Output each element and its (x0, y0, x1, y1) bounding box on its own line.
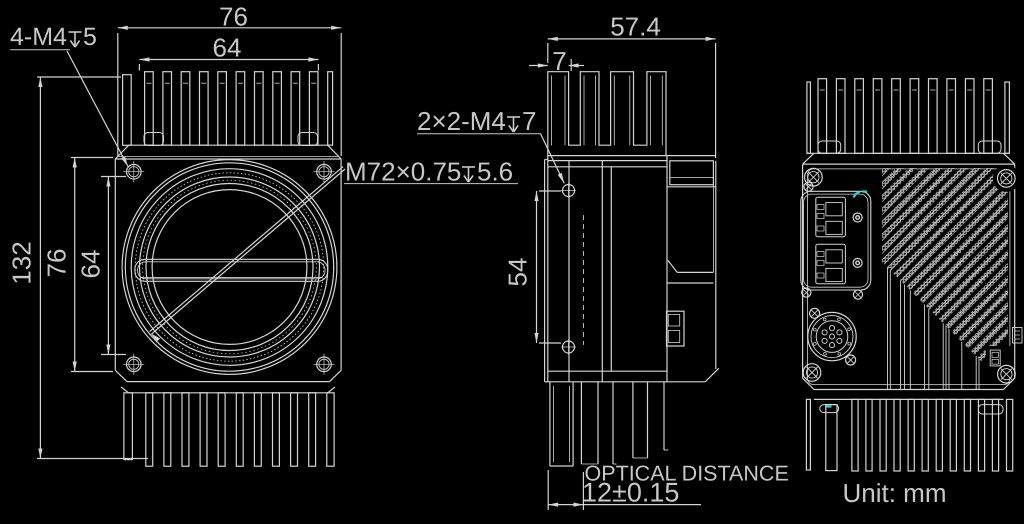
svg-text:M72×0.75: M72×0.75 (345, 157, 461, 187)
svg-text:7: 7 (522, 106, 536, 136)
svg-text:Unit: mm: Unit: mm (843, 478, 947, 508)
svg-text:54: 54 (503, 258, 533, 287)
svg-text:64: 64 (213, 33, 242, 63)
svg-text:5.6: 5.6 (477, 157, 513, 187)
svg-text:5: 5 (83, 23, 97, 51)
svg-text:76: 76 (42, 249, 72, 278)
svg-text:12±0.15: 12±0.15 (582, 478, 679, 508)
svg-text:2×2-M4: 2×2-M4 (417, 106, 506, 136)
svg-text:4-M4: 4-M4 (10, 23, 67, 51)
svg-text:132: 132 (7, 241, 37, 284)
svg-text:57.4: 57.4 (610, 12, 661, 42)
svg-text:76: 76 (219, 2, 248, 32)
svg-text:64: 64 (76, 250, 106, 279)
